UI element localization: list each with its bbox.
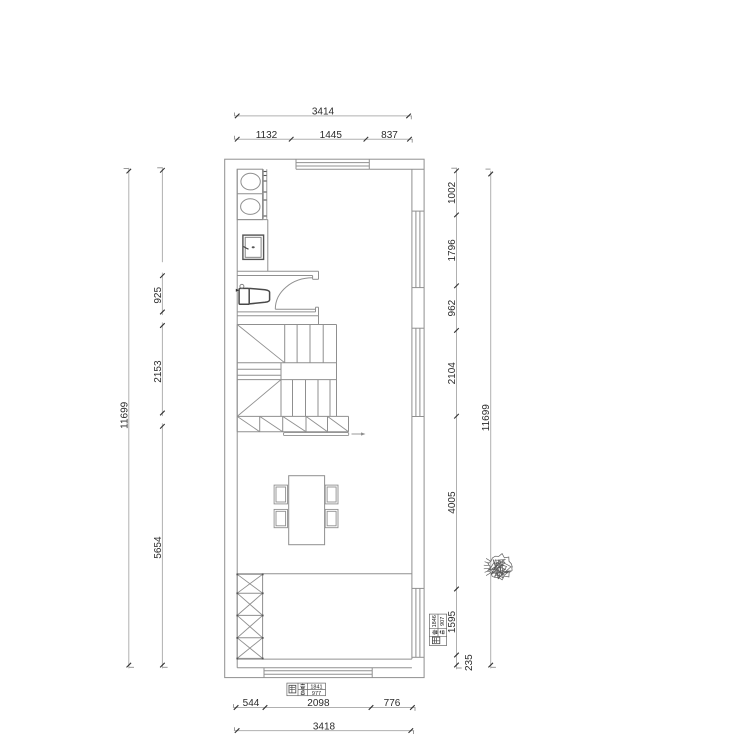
svg-text:3414: 3414 xyxy=(312,107,335,118)
svg-text:1002: 1002 xyxy=(447,181,458,204)
svg-text:2153: 2153 xyxy=(153,360,164,383)
svg-text:962: 962 xyxy=(447,299,458,316)
svg-text:1595: 1595 xyxy=(447,610,458,633)
svg-text:2098: 2098 xyxy=(307,698,330,709)
svg-text:4005: 4005 xyxy=(447,491,458,514)
svg-text:1132: 1132 xyxy=(256,130,278,141)
svg-text:11699: 11699 xyxy=(119,401,130,429)
svg-text:925: 925 xyxy=(153,287,164,304)
svg-text:1445: 1445 xyxy=(320,130,343,141)
svg-text:11699: 11699 xyxy=(481,404,492,432)
svg-text:776: 776 xyxy=(384,698,401,709)
svg-text:1796: 1796 xyxy=(447,239,458,262)
svg-text:544: 544 xyxy=(243,698,260,709)
svg-text:977: 977 xyxy=(312,691,321,697)
svg-text:837: 837 xyxy=(381,130,398,141)
svg-text:1841: 1841 xyxy=(310,685,322,691)
svg-text:2104: 2104 xyxy=(447,362,458,385)
svg-text:1846: 1846 xyxy=(432,615,438,627)
svg-text:5654: 5654 xyxy=(153,536,164,559)
svg-text:235: 235 xyxy=(464,654,475,671)
svg-text:3418: 3418 xyxy=(313,721,336,732)
svg-text:907: 907 xyxy=(440,617,446,626)
